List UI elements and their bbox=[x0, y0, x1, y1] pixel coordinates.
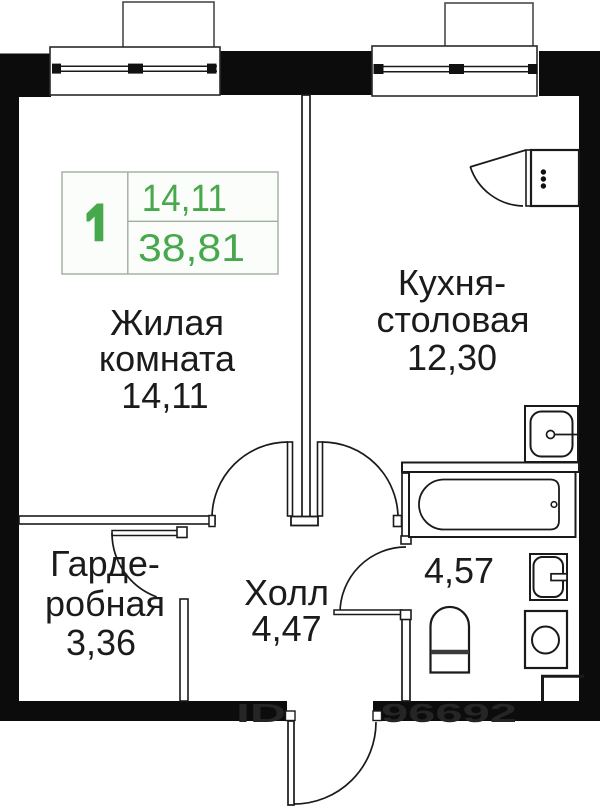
svg-text:4,57: 4,57 bbox=[424, 550, 494, 591]
svg-text:робная: робная bbox=[45, 583, 165, 624]
svg-text:3,36: 3,36 bbox=[66, 622, 136, 663]
svg-text:4,47: 4,47 bbox=[252, 608, 322, 649]
svg-text:14,11: 14,11 bbox=[142, 178, 227, 220]
svg-text:96692: 96692 bbox=[381, 698, 517, 728]
svg-text:столовая: столовая bbox=[377, 299, 530, 340]
svg-text:14,11: 14,11 bbox=[121, 375, 208, 416]
svg-text:Жилая: Жилая bbox=[110, 302, 224, 343]
svg-text:Гарде-: Гарде- bbox=[50, 543, 160, 584]
svg-text:12,30: 12,30 bbox=[407, 337, 497, 378]
svg-text:ID: ID bbox=[236, 698, 286, 728]
svg-text:Холл: Холл bbox=[244, 572, 329, 613]
svg-text:Кухня-: Кухня- bbox=[398, 262, 506, 303]
svg-text:38,81: 38,81 bbox=[138, 227, 245, 270]
svg-text:комната: комната bbox=[99, 338, 236, 379]
